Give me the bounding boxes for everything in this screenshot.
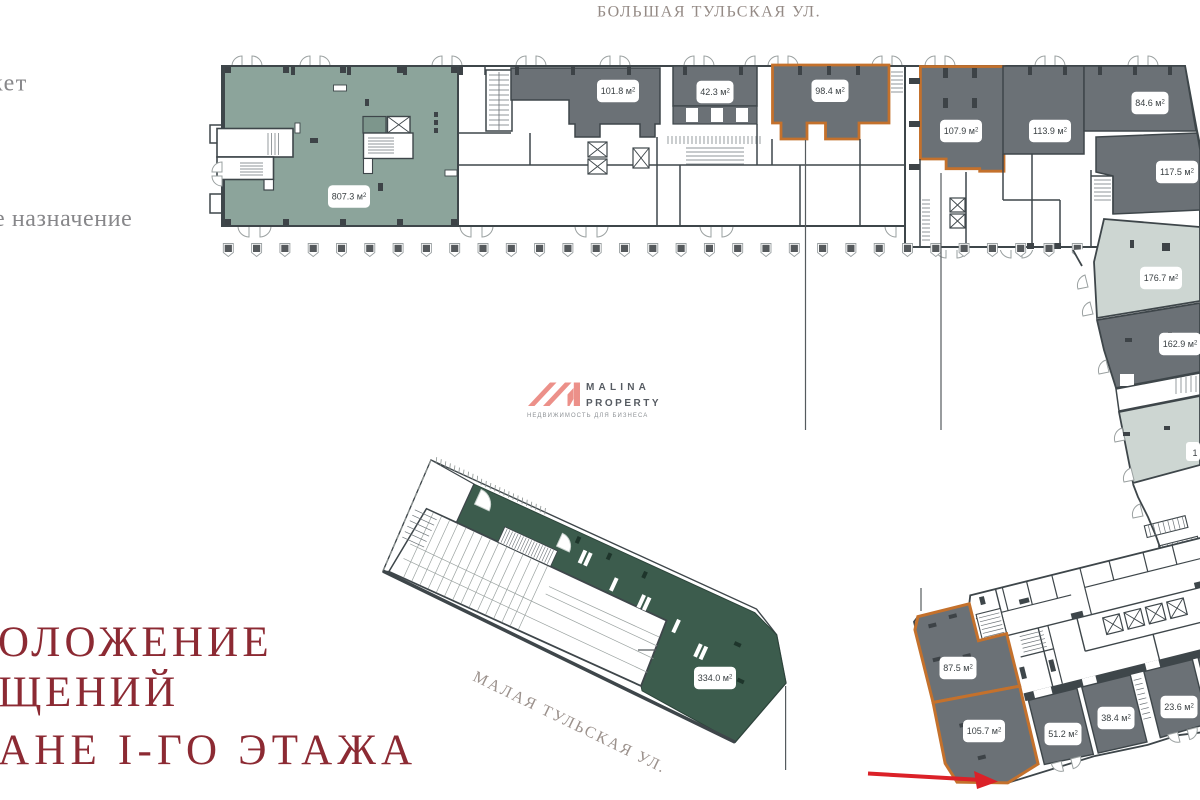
svg-text:ЩЕНИЙ: ЩЕНИЙ bbox=[0, 669, 179, 716]
svg-text:87.5 м2: 87.5 м2 bbox=[943, 663, 973, 673]
svg-text:23.6 м2: 23.6 м2 bbox=[1164, 702, 1194, 712]
svg-text:107.9 м2: 107.9 м2 bbox=[944, 126, 979, 136]
svg-text:334.0 м2: 334.0 м2 bbox=[698, 673, 733, 683]
svg-text:105.7 м2: 105.7 м2 bbox=[967, 726, 1002, 736]
svg-text:807.3 м2: 807.3 м2 bbox=[332, 192, 367, 202]
svg-text:113.9 м2: 113.9 м2 bbox=[1033, 126, 1068, 136]
svg-text:84.6 м2: 84.6 м2 bbox=[1135, 98, 1165, 108]
svg-text:42.3 м2: 42.3 м2 bbox=[700, 87, 730, 97]
svg-text:38.4 м2: 38.4 м2 bbox=[1101, 713, 1131, 723]
svg-text:117.5 м2: 117.5 м2 bbox=[1160, 167, 1195, 177]
svg-text:MALINA: MALINA bbox=[586, 382, 650, 393]
svg-text:PROPERTY: PROPERTY bbox=[586, 398, 661, 409]
svg-text:НЕДВИЖИМОСТЬ ДЛЯ БИЗНЕСА: НЕДВИЖИМОСТЬ ДЛЯ БИЗНЕСА bbox=[527, 413, 648, 419]
svg-text:кет: кет bbox=[0, 71, 28, 97]
svg-text:ОЛОЖЕНИЕ: ОЛОЖЕНИЕ bbox=[0, 619, 273, 666]
svg-text:101.8 м2: 101.8 м2 bbox=[601, 86, 636, 96]
svg-text:АНЕ I-ГО ЭТАЖА: АНЕ I-ГО ЭТАЖА bbox=[0, 727, 417, 774]
svg-text:162.9 м2: 162.9 м2 bbox=[1163, 339, 1198, 349]
svg-text:БОЛЬШАЯ ТУЛЬСКАЯ УЛ.: БОЛЬШАЯ ТУЛЬСКАЯ УЛ. bbox=[597, 4, 821, 21]
svg-text:176.7 м2: 176.7 м2 bbox=[1144, 273, 1179, 283]
svg-text:51.2 м2: 51.2 м2 bbox=[1048, 729, 1078, 739]
svg-text:1: 1 bbox=[1192, 448, 1197, 458]
svg-text:е назначение: е назначение bbox=[0, 206, 132, 232]
svg-text:98.4 м2: 98.4 м2 bbox=[815, 86, 845, 96]
